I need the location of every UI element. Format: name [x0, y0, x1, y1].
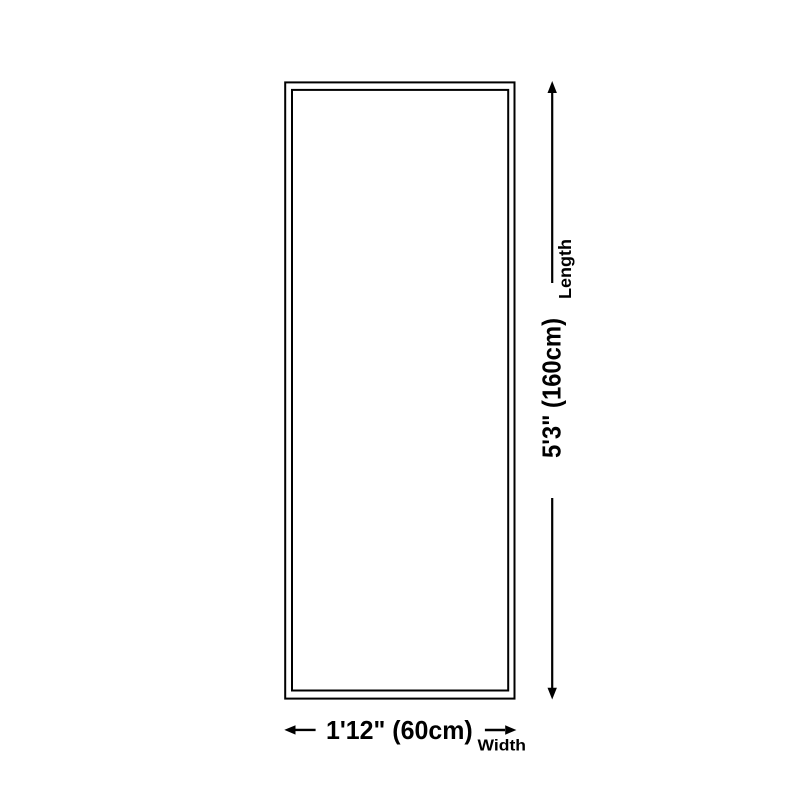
svg-text:1'12" (60cm): 1'12" (60cm) [326, 715, 473, 745]
svg-text:Length: Length [555, 239, 575, 299]
svg-text:5'3" (160cm): 5'3" (160cm) [537, 318, 567, 458]
svg-text:Width: Width [478, 737, 527, 754]
